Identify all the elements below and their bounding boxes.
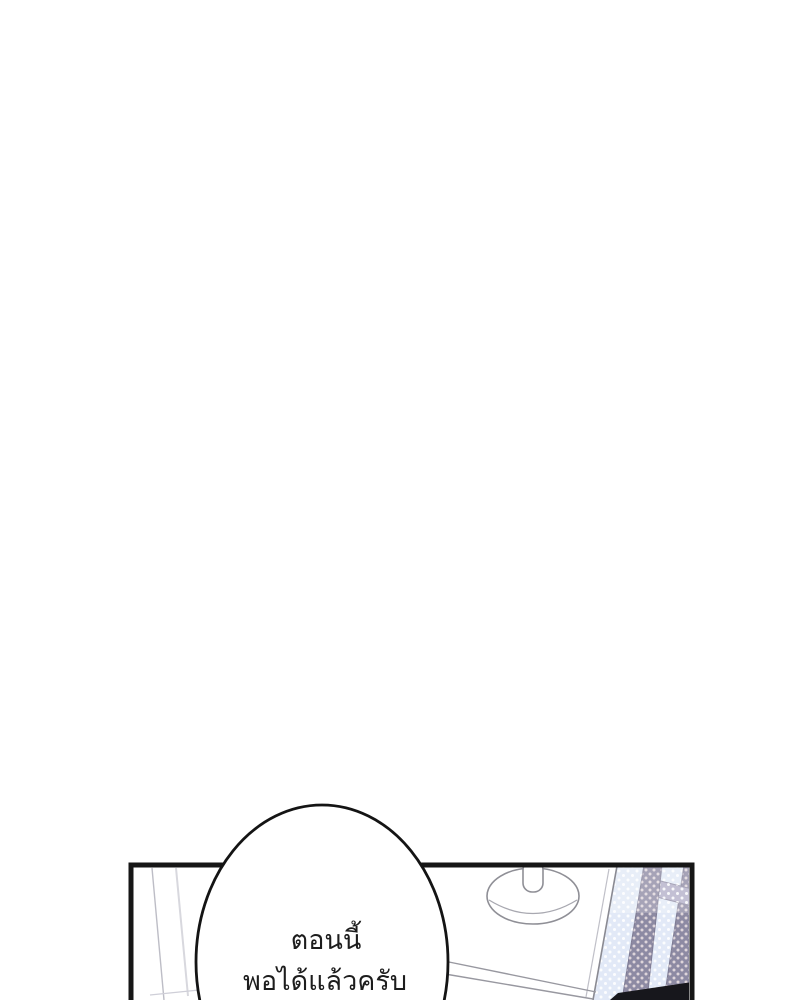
- speech-bubble-line-2: พอได้แล้วครับ: [243, 966, 407, 997]
- comic-page: ตอนนี้ พอได้แล้วครับ: [0, 0, 800, 1000]
- speech-bubble-line-1: ตอนนี้: [291, 920, 362, 956]
- comic-panel-canvas: ตอนนี้ พอได้แล้วครับ: [0, 0, 800, 1000]
